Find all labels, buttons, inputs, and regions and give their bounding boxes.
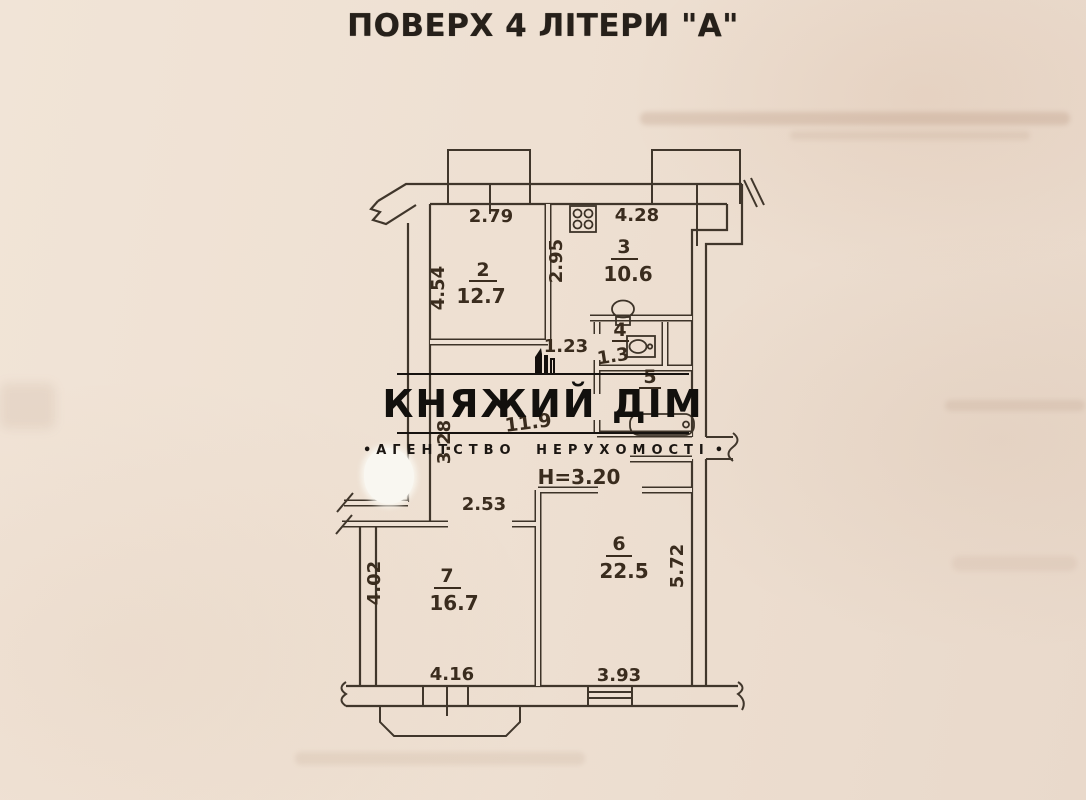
wall-break-bottom-left xyxy=(342,682,347,706)
dim-room2-width: 2.79 xyxy=(469,206,513,227)
wall-break-top-right xyxy=(744,178,764,207)
top-wall-outer xyxy=(378,184,742,201)
room6-area: 22.5 xyxy=(599,559,648,583)
room6-number: 6 xyxy=(612,533,625,555)
dim-kitchen-depth: 2.95 xyxy=(546,239,567,283)
room4-number: 4 xyxy=(613,319,626,341)
wall-break-bottom-right xyxy=(738,682,744,710)
room2-number: 2 xyxy=(476,259,489,281)
bottom-window xyxy=(588,686,632,706)
room3-area: 10.6 xyxy=(603,262,652,286)
ceiling-height: Н=3.20 xyxy=(538,465,621,489)
room3-number: 3 xyxy=(617,236,630,258)
dim-hall-width: 2.53 xyxy=(462,494,506,515)
dim-room2-depth: 4.54 xyxy=(428,266,449,310)
right-wall-outer xyxy=(706,184,742,686)
floor-plan: 2.79 4.28 4.54 2.95 2 12.7 3 10.6 1.23 4… xyxy=(0,0,1086,800)
dim-kitchen-width: 4.28 xyxy=(615,205,659,226)
room7-area: 16.7 xyxy=(429,591,478,615)
right-wall-inner xyxy=(692,204,727,686)
balcony-outline xyxy=(380,706,520,736)
dim-room7-width: 4.16 xyxy=(430,664,474,685)
sink-icon xyxy=(627,336,655,357)
dim-wc-passage: 1.23 xyxy=(544,336,588,357)
window-bay-left xyxy=(448,150,530,184)
corridor-area: 11.9 xyxy=(504,409,553,437)
room5-number: 5 xyxy=(643,366,656,388)
window-bay-right xyxy=(652,150,740,184)
whiteout-blob xyxy=(364,448,414,504)
dim-room7-depth: 4.02 xyxy=(364,561,385,605)
balcony-door xyxy=(423,686,468,716)
dim-corridor-depth: 3.28 xyxy=(434,420,455,464)
scanned-floor-plan-page: ПОВЕРХ 4 ЛІТЕРИ "А" xyxy=(0,0,1086,800)
room2-area: 12.7 xyxy=(456,284,505,308)
dim-room6-depth: 5.72 xyxy=(667,544,688,588)
dim-room6-width: 3.93 xyxy=(597,665,641,686)
room7-number: 7 xyxy=(440,565,453,587)
wall-break-left-stubs xyxy=(336,493,353,534)
outer-walls xyxy=(346,184,742,706)
stove-icon xyxy=(570,206,596,232)
top-wall-left-break xyxy=(371,201,416,224)
